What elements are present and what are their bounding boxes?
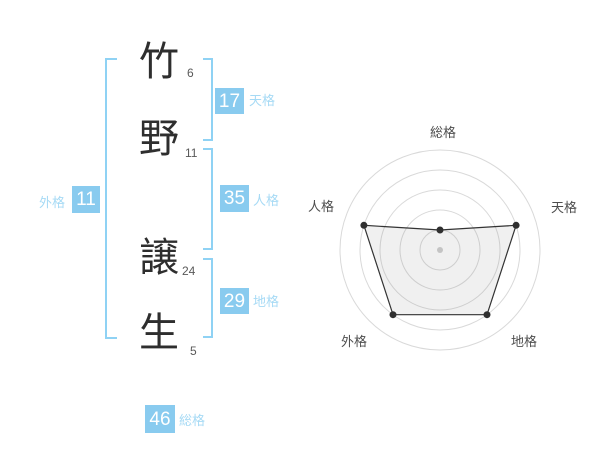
jinkaku-bracket bbox=[203, 148, 213, 250]
radar-axis-label-chikaku: 地格 bbox=[511, 334, 537, 349]
stroke-count-4: 5 bbox=[190, 345, 197, 357]
radar-axis-label-tenkaku: 天格 bbox=[551, 200, 577, 215]
gaikaku-value-box: 11 bbox=[72, 186, 100, 213]
chikaku-label: 地格 bbox=[253, 295, 279, 308]
soukaku-value-box: 46 bbox=[145, 405, 175, 433]
gaikaku-bracket bbox=[105, 58, 117, 339]
name-char-3: 譲 bbox=[137, 238, 181, 278]
stroke-count-3: 24 bbox=[182, 265, 195, 277]
name-char-1: 竹 bbox=[137, 42, 181, 82]
name-char-2: 野 bbox=[137, 119, 181, 159]
gaikaku-label: 外格 bbox=[39, 196, 65, 209]
tenkaku-bracket bbox=[203, 58, 213, 141]
radar-chart: 総格 天格 地格 外格 人格 bbox=[300, 115, 590, 360]
soukaku-label: 総格 bbox=[179, 414, 205, 427]
radar-axis-label-gaikaku: 外格 bbox=[341, 334, 367, 349]
chikaku-bracket bbox=[203, 258, 213, 338]
jinkaku-label: 人格 bbox=[253, 194, 279, 207]
tenkaku-label: 天格 bbox=[249, 94, 275, 107]
radar-axis-label-soukaku: 総格 bbox=[430, 125, 456, 140]
radar-data-polygon bbox=[364, 225, 516, 314]
stroke-count-1: 6 bbox=[187, 67, 194, 79]
radar-axis-label-jinkaku: 人格 bbox=[308, 199, 334, 214]
name-char-4: 生 bbox=[137, 313, 181, 353]
stroke-count-2: 11 bbox=[185, 147, 197, 159]
tenkaku-value-box: 17 bbox=[215, 88, 244, 114]
name-analysis-page: 竹 野 譲 生 6 11 24 5 17 天格 35 人格 29 地格 外格 1… bbox=[0, 0, 600, 470]
chikaku-value-box: 29 bbox=[220, 288, 249, 314]
radar-center-dot bbox=[437, 247, 443, 253]
jinkaku-value-box: 35 bbox=[220, 185, 249, 212]
